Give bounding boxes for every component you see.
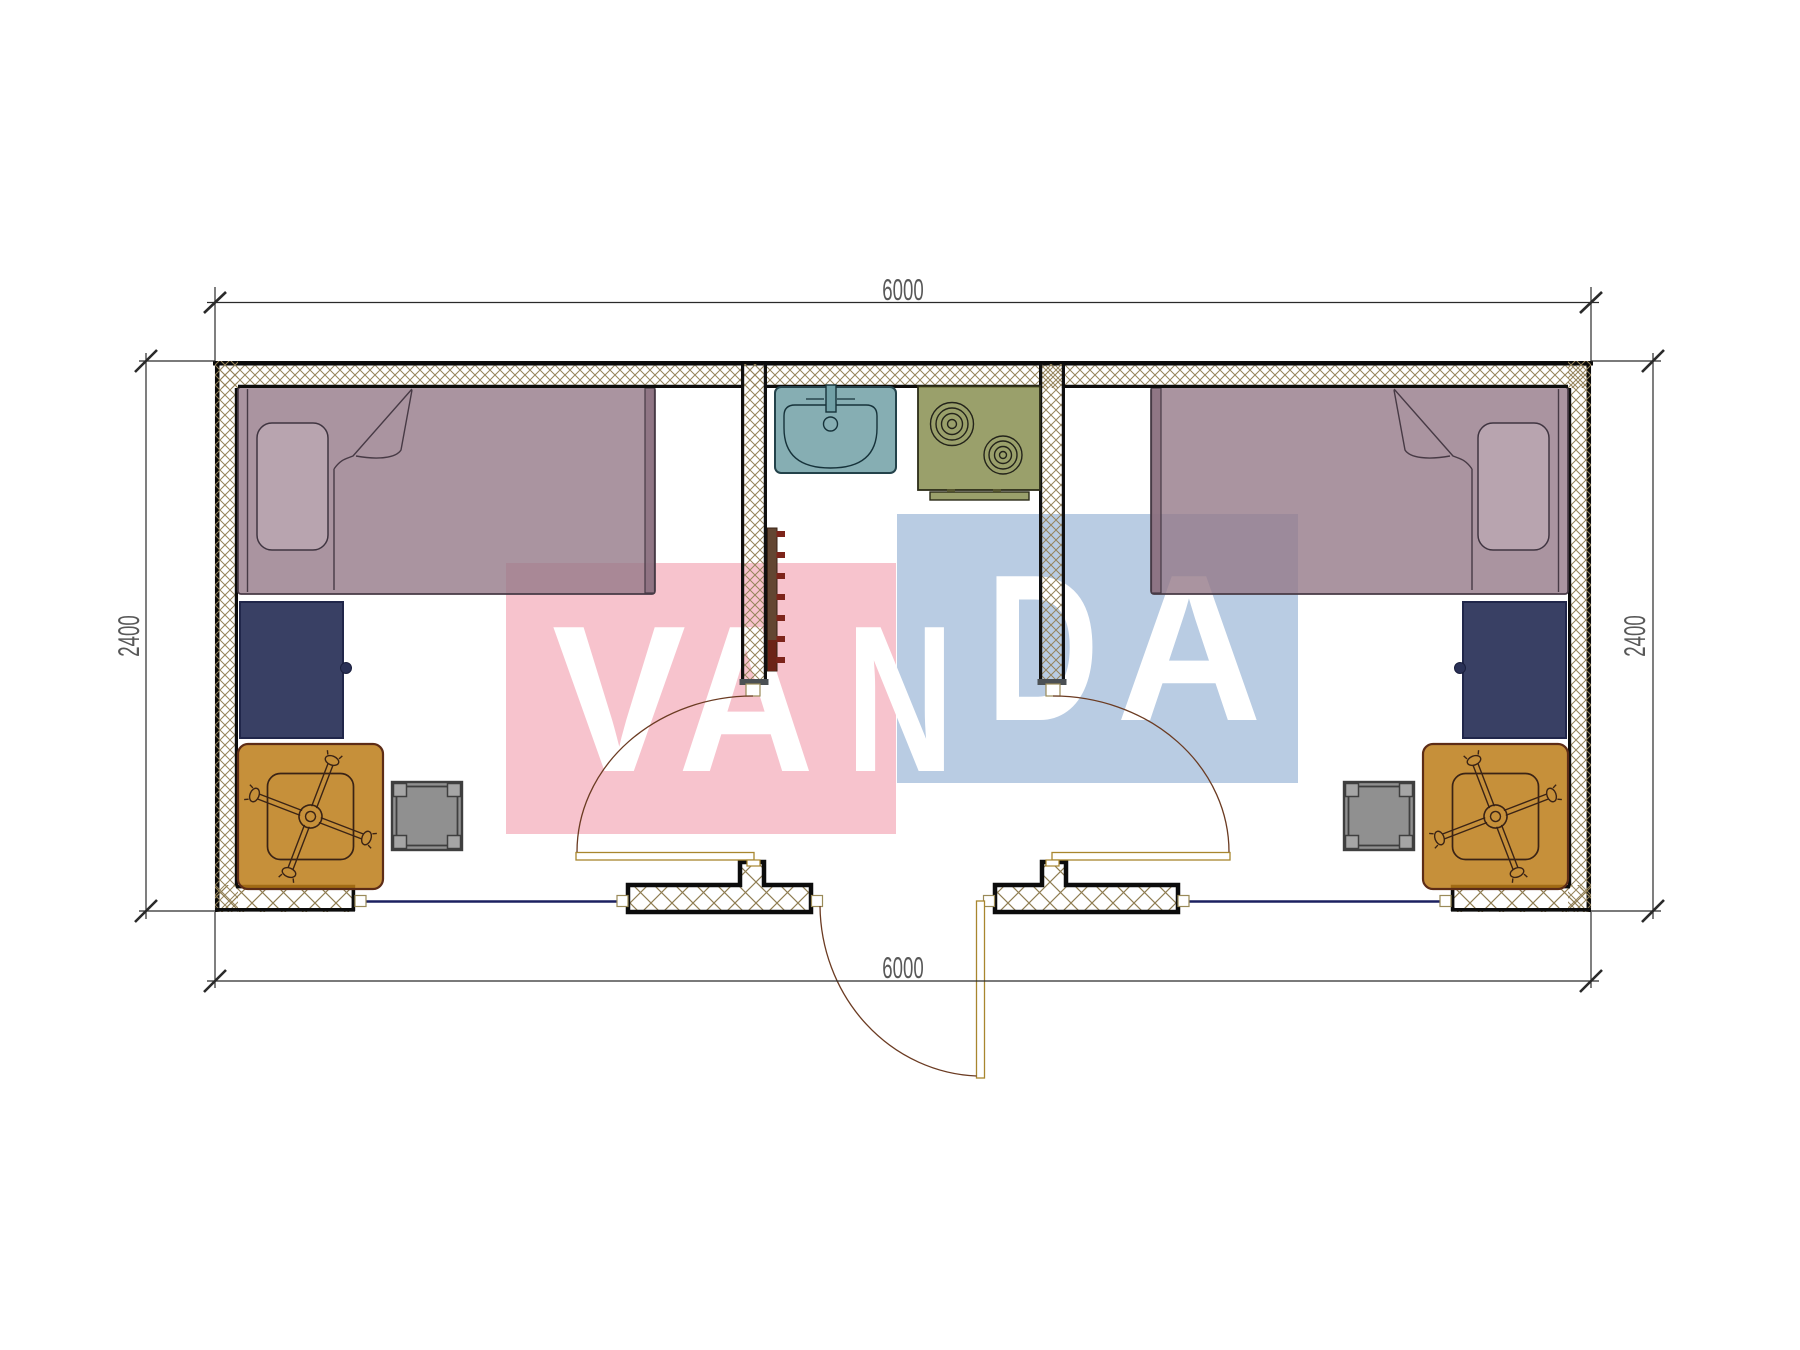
svg-text:6000: 6000 [882,952,923,985]
svg-text:2400: 2400 [113,615,146,656]
svg-text:N: N [846,583,954,816]
svg-text:2400: 2400 [1619,615,1652,656]
svg-text:6000: 6000 [882,274,923,307]
svg-text:V: V [552,583,686,816]
